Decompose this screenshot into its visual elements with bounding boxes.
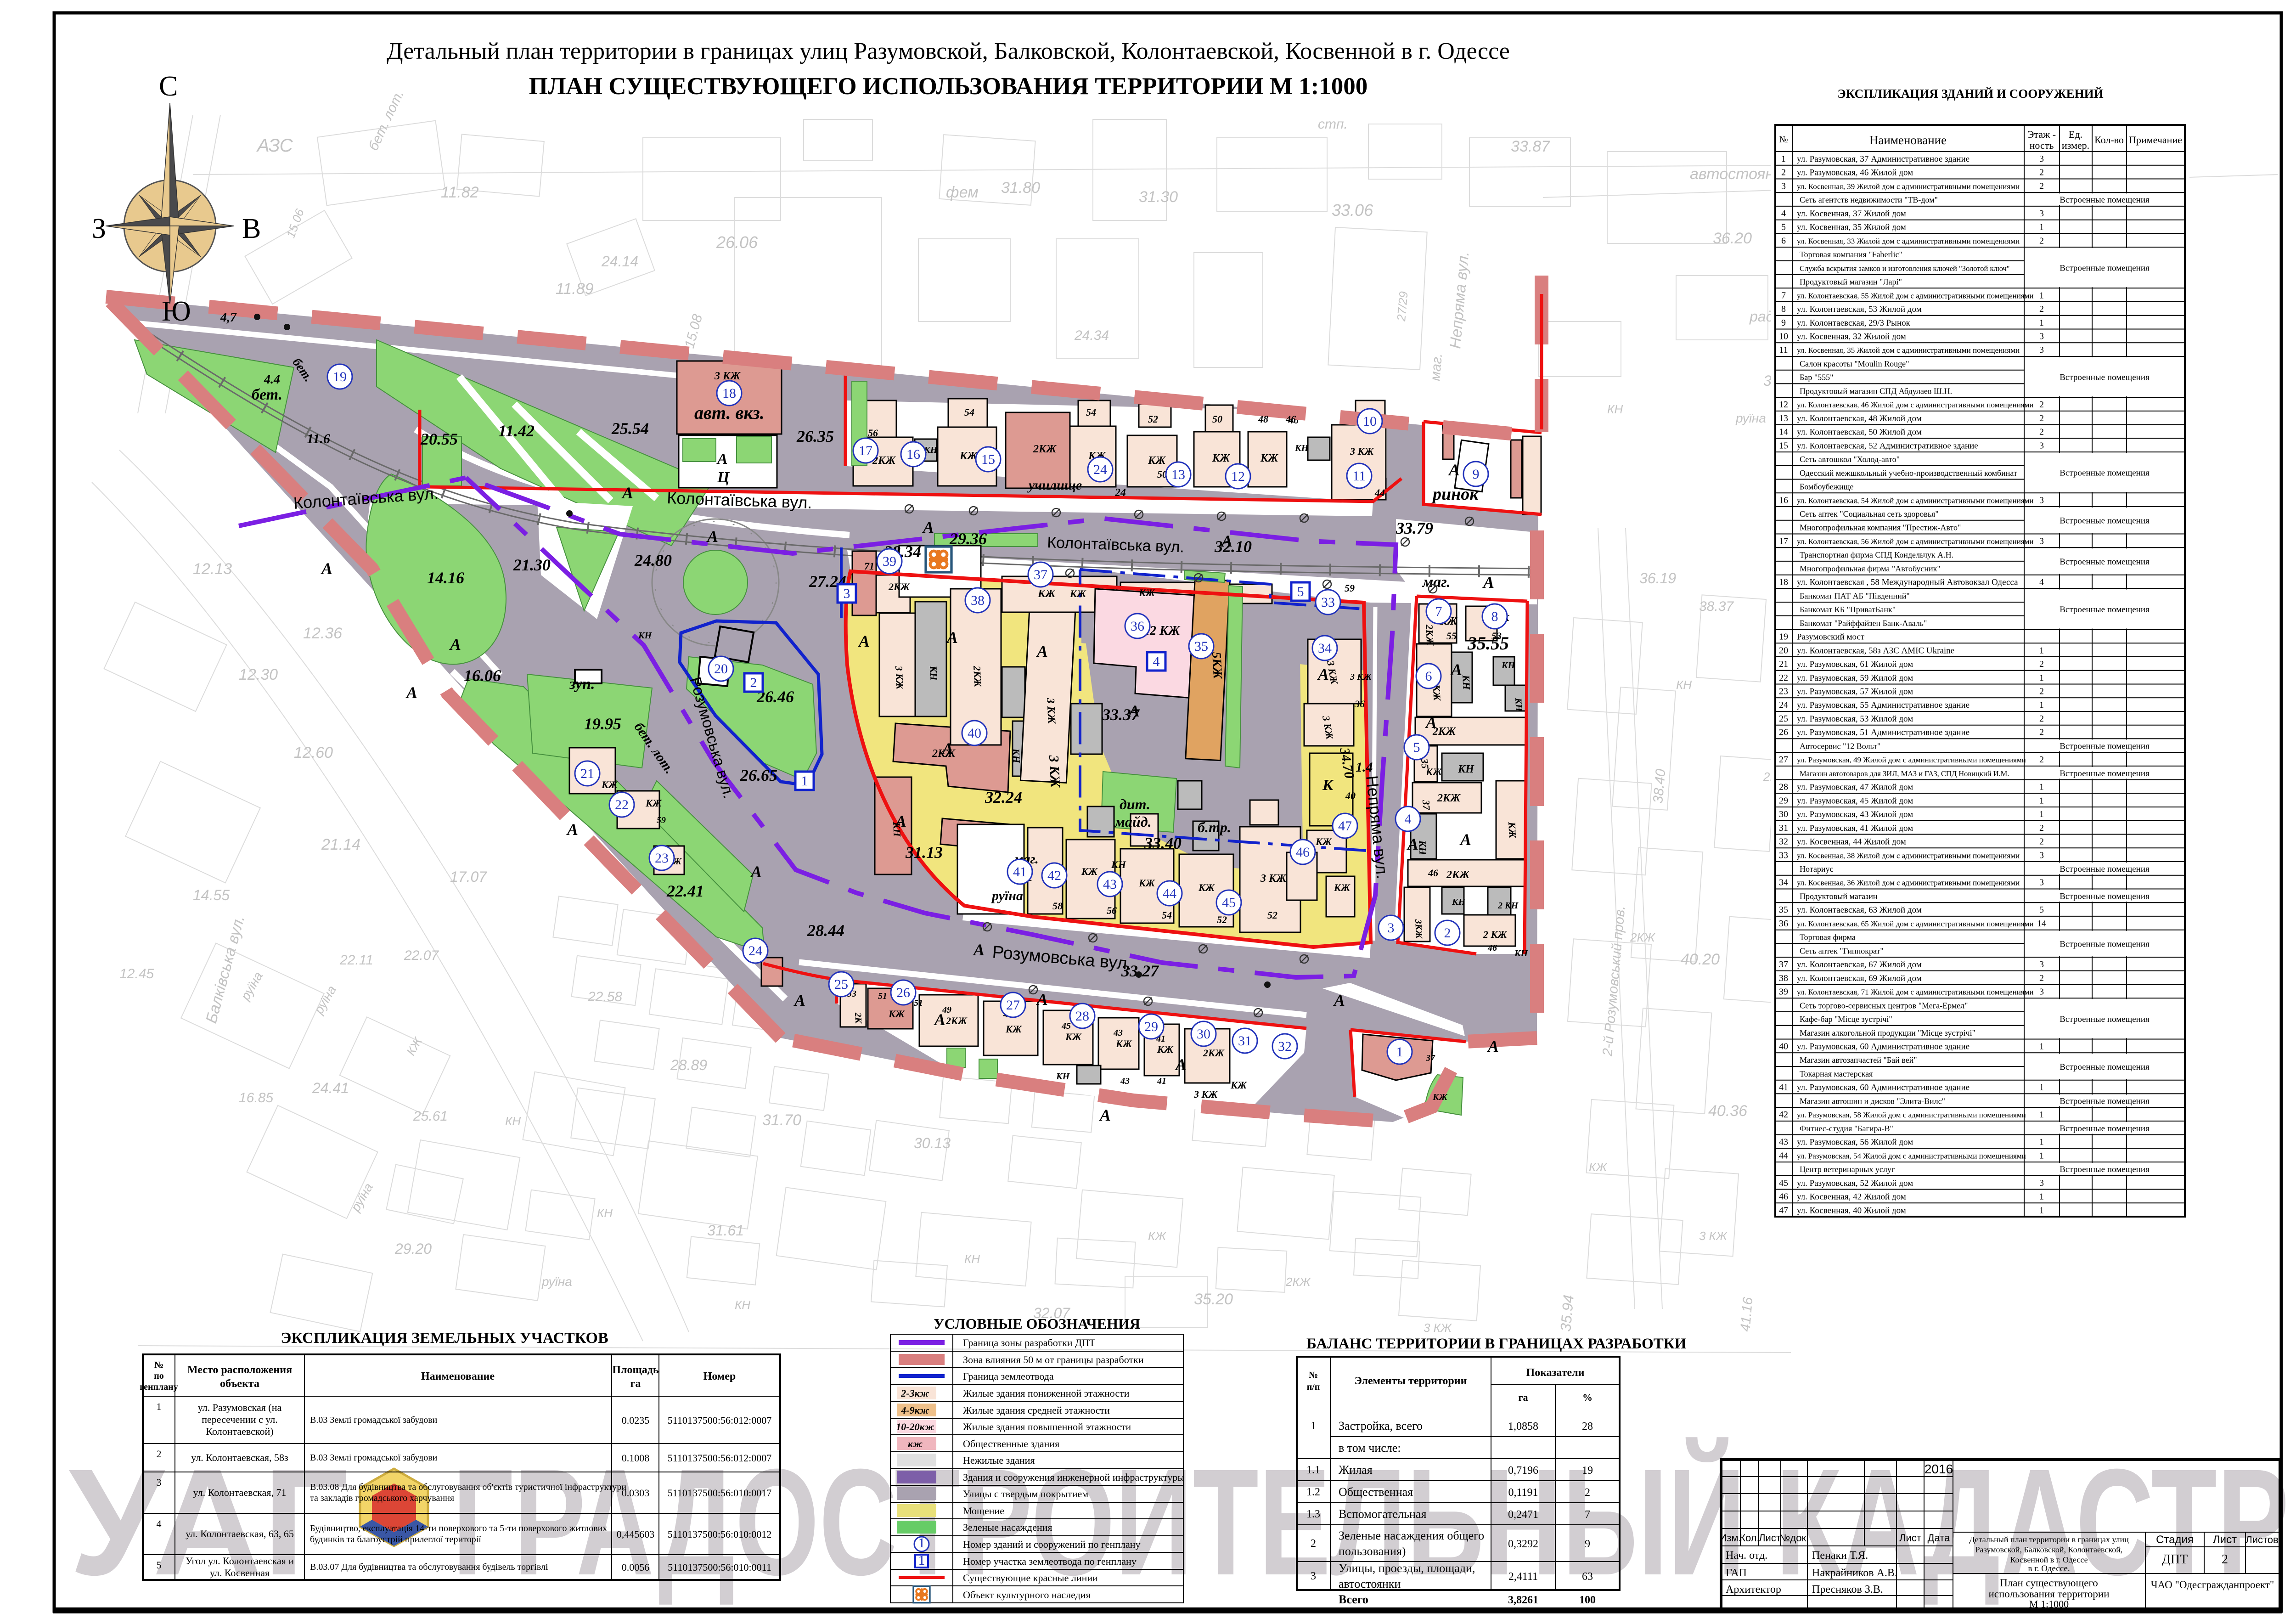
svg-text:1: 1 [2039,1150,2044,1161]
svg-text:0,2471: 0,2471 [1508,1509,1538,1521]
svg-text:Дата: Дата [1928,1532,1950,1544]
svg-text:Магазин автошин и дисков "Элит: Магазин автошин и дисков "Элита-Вилс" [1800,1096,1945,1105]
svg-text:14: 14 [2037,919,2046,929]
svg-text:План существующего: План существующего [2000,1577,2098,1589]
svg-text:3: 3 [2039,850,2044,860]
svg-text:Встроенные помещения: Встроенные помещения [2060,741,2150,751]
svg-text:19: 19 [1582,1465,1593,1477]
svg-text:ул. Разумовская, 37 Админист: ул. Разумовская, 37 Административное зда… [1797,154,1970,164]
svg-text:2: 2 [1781,168,1786,178]
svg-text:9: 9 [1781,318,1786,328]
svg-text:42: 42 [1047,868,1061,883]
svg-text:Сеть аптек "Гиппократ": Сеть аптек "Гиппократ" [1800,946,1884,955]
svg-text:та закладів громадського харчу: та закладів громадського харчування [310,1493,454,1503]
svg-text:майд.: майд. [1114,813,1152,830]
svg-text:44: 44 [1779,1150,1788,1161]
svg-text:38.40: 38.40 [1650,768,1668,804]
svg-text:ул. Косвенная, 33 Жилой дом с: ул. Косвенная, 33 Жилой дом с администра… [1797,237,2020,245]
svg-text:Накрайников А.В.: Накрайников А.В. [1812,1567,1897,1579]
svg-text:будинків та благоустрій прилег: будинків та благоустрій прилеглої терито… [310,1534,481,1545]
svg-text:2КЖ: 2КЖ [945,1015,968,1026]
svg-text:ул. Разумовская, 46 Жилой дом: ул. Разумовская, 46 Жилой дом [1797,168,1913,178]
svg-text:1: 1 [2039,1042,2044,1052]
svg-text:А: А [1487,1037,1499,1055]
svg-text:14: 14 [1779,427,1788,437]
svg-text:КН: КН [1294,443,1309,453]
svg-text:45: 45 [1779,1178,1788,1188]
svg-text:ГАП: ГАП [1726,1567,1747,1579]
svg-text:30: 30 [1779,809,1788,819]
svg-text:7: 7 [1435,604,1442,619]
svg-text:Токарная мастерская: Токарная мастерская [1800,1069,1873,1078]
svg-text:0.0235: 0.0235 [622,1415,650,1426]
svg-text:руїна: руїна [1735,411,1766,425]
svg-text:2: 2 [2039,714,2044,724]
svg-text:1: 1 [1396,1044,1403,1060]
svg-text:Встроенные помещения: Встроенные помещения [2060,891,2150,901]
svg-text:2-3кж: 2-3кж [900,1387,929,1399]
svg-text:б.тр.: б.тр. [1198,819,1231,835]
svg-text:2: 2 [2039,823,2044,833]
svg-text:29.20: 29.20 [394,1241,432,1257]
svg-text:40: 40 [1345,790,1356,801]
svg-text:3: 3 [157,1477,162,1488]
svg-text:в г. Одессе.: в г. Одессе. [2028,1564,2070,1573]
svg-text:Номер: Номер [703,1370,736,1382]
svg-text:Бар "555": Бар "555" [1800,373,1834,382]
svg-text:КЖ: КЖ [1198,882,1215,893]
svg-text:36: 36 [1131,619,1144,634]
svg-text:Встроенные помещения: Встроенные помещения [2060,373,2150,383]
svg-text:Банкомат "Райффайзен Банк-Авал: Банкомат "Райффайзен Банк-Аваль" [1800,619,1927,628]
svg-text:39: 39 [1779,987,1788,997]
svg-text:Мощение: Мощение [963,1505,1004,1517]
svg-text:1: 1 [2039,222,2044,232]
svg-text:Общественная: Общественная [1339,1485,1413,1499]
svg-text:0.1008: 0.1008 [622,1452,650,1464]
svg-text:Объект культурного наследия: Объект культурного наследия [963,1589,1091,1601]
svg-text:33: 33 [1321,595,1335,610]
svg-text:46: 46 [1779,1192,1788,1202]
svg-text:28: 28 [1075,1009,1089,1024]
svg-text:КЖ: КЖ [1157,1043,1174,1055]
svg-text:4: 4 [2039,577,2044,587]
svg-text:Существующие красные линии: Существующие красные линии [963,1572,1098,1584]
svg-text:Сеть торгово-сервисных центров: Сеть торгово-сервисных центров "Мега-Ерм… [1800,1001,1968,1010]
svg-text:КЖ: КЖ [1148,455,1166,467]
svg-text:Ед.: Ед. [2069,129,2082,140]
svg-text:Встроенные помещения: Встроенные помещения [2060,1124,2150,1133]
svg-text:38: 38 [971,593,985,608]
svg-text:25: 25 [1779,714,1788,724]
svg-text:2КЖ: 2КЖ [1203,1047,1225,1059]
svg-text:4: 4 [1153,654,1160,669]
svg-text:Будівництво, експлуатація 14-т: Будівництво, експлуатація 14-ти поверхов… [310,1523,607,1534]
svg-text:КЖ: КЖ [1432,1092,1448,1102]
svg-text:ул. Колонтаевская, 67 Жилой: ул. Колонтаевская, 67 Жилой дом [1797,960,1922,970]
svg-text:ул. Разумовская, 49 Жилой до: ул. Разумовская, 49 Жилой дом с админист… [1797,756,2026,764]
svg-text:35.20: 35.20 [1194,1291,1233,1308]
svg-text:16.06: 16.06 [464,666,501,685]
svg-text:2КЖ: 2КЖ [888,581,910,592]
svg-text:1: 1 [801,773,808,789]
svg-text:ул. Разумовская, 57 Жилой до: ул. Разумовская, 57 Жилой дом [1797,687,1913,697]
svg-text:стп.: стп. [1318,117,1348,132]
svg-text:ул. Разумовская, 53 Жилой до: ул. Разумовская, 53 Жилой дом [1797,714,1913,724]
svg-text:100: 100 [1579,1594,1596,1606]
svg-text:Граница зоны разработки ДПТ: Граница зоны разработки ДПТ [963,1337,1096,1348]
svg-text:А: А [922,518,934,536]
svg-text:6: 6 [1425,669,1432,684]
svg-text:1: 1 [2039,1083,2044,1093]
svg-text:8: 8 [1491,609,1498,624]
svg-text:1: 1 [918,1553,925,1568]
svg-text:КЖ: КЖ [1005,1023,1022,1035]
svg-text:ПЛАН СУЩЕСТВУЮЩЕГО ИСПОЛЬЗОВАН: ПЛАН СУЩЕСТВУЮЩЕГО ИСПОЛЬЗОВАНИЯ ТЕРРИТО… [529,73,1368,100]
svg-text:ул. Косвенная, 35 Жилой дом: ул. Косвенная, 35 Жилой дом с администра… [1797,346,2020,355]
svg-text:ул. Колонтаевская, 71: ул. Колонтаевская, 71 [193,1487,287,1498]
svg-text:2: 2 [2039,687,2044,697]
svg-text:11.89: 11.89 [556,280,594,298]
svg-text:10: 10 [1363,414,1377,429]
svg-text:ул. Разумовская, 59 Жилой до: ул. Разумовская, 59 Жилой дом [1797,673,1913,683]
svg-text:Магазин алкогольной продукции: Магазин алкогольной продукции "Місце зус… [1800,1028,1975,1038]
svg-text:3: 3 [2039,987,2044,997]
svg-text:3 КЖ: 3 КЖ [1044,697,1058,725]
svg-text:26.06: 26.06 [716,233,758,252]
svg-text:36: 36 [1779,919,1788,929]
svg-text:КЖ: КЖ [1138,877,1155,889]
svg-text:га: га [630,1378,641,1390]
svg-text:Встроенные помещения: Встроенные помещения [2060,195,2150,205]
svg-text:45: 45 [1061,1021,1071,1031]
svg-text:38.37: 38.37 [1699,599,1734,614]
svg-text:3: 3 [2039,878,2044,888]
svg-text:40.36: 40.36 [1708,1102,1747,1120]
svg-text:Граница землеотвода: Граница землеотвода [963,1370,1054,1382]
svg-text:руїна: руїна [541,1274,572,1289]
svg-text:Сеть автошкол "Холод-авто": Сеть автошкол "Холод-авто" [1800,455,1900,464]
svg-text:12.45: 12.45 [119,966,154,981]
svg-text:5110137500:56:010:0017: 5110137500:56:010:0017 [668,1487,772,1499]
svg-text:31: 31 [1238,1033,1252,1049]
svg-text:15: 15 [981,452,995,467]
svg-text:Улицы, проезды, площади,: Улицы, проезды, площади, [1339,1562,1475,1575]
svg-text:13: 13 [1779,413,1788,423]
svg-text:КЖ: КЖ [1425,766,1442,778]
svg-text:А: А [321,559,332,578]
svg-text:22.11: 22.11 [339,953,373,968]
svg-text:2КЖ: 2КЖ [1437,792,1461,804]
svg-text:15: 15 [1779,440,1788,451]
svg-text:ул. Колонтаевская, 53 Жилой до: ул. Колонтаевская, 53 Жилой дом [1797,304,1922,314]
svg-text:12: 12 [1231,469,1245,484]
svg-text:55: 55 [1446,630,1457,642]
svg-text:А: А [973,941,985,959]
svg-text:В.03.07 Для будівництва та обс: В.03.07 Для будівництва та обслуговуванн… [310,1562,548,1572]
svg-text:16: 16 [906,447,920,462]
svg-text:Застройка, всего: Застройка, всего [1339,1419,1423,1432]
svg-text:п/п: п/п [1307,1382,1320,1392]
svg-text:7: 7 [1585,1509,1590,1521]
svg-text:31.13: 31.13 [905,843,943,862]
svg-text:Наименование: Наименование [421,1370,495,1382]
svg-text:2: 2 [1311,1538,1316,1550]
svg-text:А: А [1175,1055,1187,1074]
svg-text:А: А [1448,461,1460,479]
svg-text:20: 20 [1779,645,1788,655]
svg-text:пересечении с ул.: пересечении с ул. [202,1414,278,1425]
svg-text:Многопрофильная компания "Прес: Многопрофильная компания "Престиж-Авто" [1800,523,1961,532]
svg-text:Зеленые насаждения: Зеленые насаждения [963,1522,1052,1533]
svg-text:ул. Разумовская, 56 Жилой дом: ул. Разумовская, 56 Жилой дом [1797,1138,1913,1147]
svg-text:ул. Разумовская, 45 Жилой до: ул. Разумовская, 45 Жилой дом [1797,796,1913,806]
svg-text:№: № [154,1360,163,1370]
svg-text:Вспомогательная: Вспомогательная [1339,1507,1426,1521]
svg-text:КН: КН [1460,674,1473,690]
svg-text:КН: КН [735,1298,750,1312]
svg-text:17.07: 17.07 [450,868,487,885]
svg-text:32: 32 [1779,837,1788,847]
svg-text:Служба вскрытия замков и изгот: Служба вскрытия замков и изготовления кл… [1800,264,2010,273]
svg-text:дит.: дит. [1120,796,1150,812]
svg-text:1.1: 1.1 [1306,1464,1320,1476]
svg-text:24.14: 24.14 [601,253,638,270]
svg-text:2: 2 [2039,973,2044,983]
svg-text:32: 32 [1278,1039,1292,1054]
svg-text:4.4: 4.4 [264,372,280,387]
svg-text:71: 71 [864,560,874,572]
svg-text:КЖ: КЖ [1148,1229,1167,1243]
svg-text:КН: КН [1056,1071,1070,1082]
svg-text:2КЖ: 2КЖ [1033,443,1057,455]
svg-text:24: 24 [1114,487,1126,499]
svg-text:КН: КН [1010,748,1023,764]
svg-text:Встроенные помещения: Встроенные помещения [2060,1096,2150,1106]
svg-text:11.42: 11.42 [498,422,535,440]
svg-text:ул. Колонтаевская, 55 Жилой до: ул. Колонтаевская, 55 Жилой дом с админи… [1797,291,2034,300]
svg-text:КЖ: КЖ [1315,836,1332,847]
svg-text:измер.: измер. [2062,140,2089,151]
svg-text:27: 27 [1779,755,1788,765]
svg-text:5110137500:56:010:0011: 5110137500:56:010:0011 [668,1562,771,1573]
svg-text:63: 63 [1582,1571,1593,1583]
svg-text:5110137500:56:012:0007: 5110137500:56:012:0007 [668,1452,772,1464]
svg-text:1: 1 [918,1535,925,1551]
svg-text:3: 3 [1781,181,1786,192]
svg-text:3: 3 [2039,440,2044,451]
svg-text:3 КЖ: 3 КЖ [893,665,906,690]
svg-text:АЗС: АЗС [256,135,293,156]
svg-text:40.20: 40.20 [1681,951,1720,968]
svg-text:31.80: 31.80 [1001,179,1040,197]
svg-text:Зона влияния 50 м от границы р: Зона влияния 50 м от границы разработки [963,1354,1144,1365]
svg-text:3 КЖ: 3 КЖ [1260,873,1287,885]
svg-text:Встроенные помещения: Встроенные помещения [2060,1165,2150,1174]
svg-text:КЖ: КЖ [1037,588,1056,600]
svg-text:46: 46 [1296,845,1310,860]
svg-text:А: А [405,683,417,702]
svg-text:Лист: Лист [1899,1532,1921,1544]
svg-text:Продуктовый магазин "Ларі": Продуктовый магазин "Ларі" [1800,277,1902,287]
svg-text:2: 2 [2039,400,2044,410]
svg-text:Косвенной в г. Одессе: Косвенной в г. Одессе [2010,1555,2088,1564]
svg-text:Элементы территории: Элементы территории [1355,1375,1467,1387]
svg-text:автостоянки: автостоянки [1339,1577,1401,1590]
svg-text:1: 1 [157,1401,162,1412]
svg-text:ул. Разумовская, 51 Админист: ул. Разумовская, 51 Административное зда… [1797,728,1970,738]
svg-text:К: К [1322,777,1334,794]
svg-text:54: 54 [964,406,974,418]
svg-text:12.60: 12.60 [294,744,333,761]
svg-text:2К: 2К [853,1012,863,1024]
svg-text:объекта: объекта [220,1378,259,1390]
svg-text:24: 24 [1779,700,1788,710]
svg-text:1: 1 [2039,1110,2044,1120]
svg-text:42: 42 [1779,1110,1788,1120]
svg-text:КН: КН [1513,697,1524,712]
svg-text:22.07: 22.07 [404,948,439,963]
svg-text:46: 46 [1428,867,1438,879]
svg-text:ЭКСПЛИКАЦИЯ ЗДАНИЙ И СООРУЖЕНИ: ЭКСПЛИКАЦИЯ ЗДАНИЙ И СООРУЖЕНИЙ [1837,87,2103,101]
svg-text:4: 4 [1781,209,1786,219]
svg-text:Сеть аптек "Социальная сеть зд: Сеть аптек "Социальная сеть здоровья" [1800,509,1939,519]
svg-text:А: А [716,451,728,468]
svg-text:37: 37 [1779,959,1788,970]
svg-text:3: 3 [1311,1570,1316,1582]
svg-text:ул. Косвенная, 44 Жилой дом: ул. Косвенная, 44 Жилой дом [1797,837,1906,847]
svg-text:1: 1 [2039,1205,2044,1215]
svg-text:46: 46 [1487,943,1497,953]
svg-text:44: 44 [1163,886,1176,901]
svg-text:А: А [621,484,633,502]
svg-text:ул. Разумовская, 54 Жилой дом: ул. Разумовская, 54 Жилой дом с админист… [1797,1151,2026,1160]
svg-text:24.41: 24.41 [312,1080,349,1096]
svg-text:52: 52 [1267,909,1277,921]
svg-text:Продуктовый магазин: Продуктовый магазин [1800,892,1878,901]
svg-text:КН: КН [1417,840,1429,856]
svg-text:В.03.08 Для будівництва та обс: В.03.08 Для будівництва та обслуговуванн… [310,1482,626,1492]
svg-text:28: 28 [1582,1421,1593,1432]
svg-text:19: 19 [1779,632,1788,642]
svg-text:11.82: 11.82 [441,184,479,201]
svg-text:3: 3 [2039,1178,2044,1188]
svg-text:ул. Колонтаевская, 54 Жилой до: ул. Колонтаевская, 54 Жилой дом с админи… [1797,496,2034,505]
svg-text:училище: училище [1027,478,1082,493]
svg-text:ул. Разумовская, 41 Жилой до: ул. Разумовская, 41 Жилой дом [1797,823,1913,833]
svg-text:12.13: 12.13 [193,560,232,578]
svg-text:Встроенные помещения: Встроенные помещения [2060,557,2150,567]
svg-text:Нежилые здания: Нежилые здания [963,1455,1035,1466]
svg-text:12.30: 12.30 [239,666,278,683]
svg-text:22: 22 [1779,673,1788,683]
svg-text:Нотариус: Нотариус [1800,864,1833,874]
svg-text:ул. Разумовская, 55 Админист: ул. Разумовская, 55 Административное зда… [1797,700,1970,710]
svg-text:48: 48 [1258,413,1268,425]
svg-text:2КЖ: 2КЖ [1432,726,1456,738]
svg-text:19.95: 19.95 [584,715,621,733]
svg-text:2: 2 [2039,168,2044,178]
svg-text:А: А [1407,835,1418,853]
svg-text:3: 3 [2039,495,2044,505]
svg-text:А: А [1036,642,1048,660]
svg-text:УСЛОВНЫЕ ОБОЗНАЧЕНИЯ: УСЛОВНЫЕ ОБОЗНАЧЕНИЯ [934,1315,1140,1332]
svg-text:1: 1 [2039,645,2044,655]
svg-text:Встроенные помещения: Встроенные помещения [2060,939,2150,949]
svg-text:КН: КН [1458,763,1474,775]
svg-text:13: 13 [1171,467,1185,482]
svg-text:Сеть агентств недвижимости "ТВ: Сеть агентств недвижимости "ТВ-дом" [1800,195,1938,204]
svg-text:№: № [1779,135,1788,145]
svg-text:А: А [566,820,578,839]
svg-text:31: 31 [1779,823,1788,833]
svg-text:33.40: 33.40 [1144,834,1182,852]
svg-text:%: % [1582,1392,1593,1403]
svg-text:Кол-во: Кол-во [2094,134,2124,146]
svg-text:25.54: 25.54 [611,419,649,438]
svg-text:32.10: 32.10 [1214,537,1252,556]
svg-text:генплану: генплану [140,1382,178,1392]
svg-text:36.20: 36.20 [1713,230,1752,247]
svg-text:Торговая компания "Faberlic": Торговая компания "Faberlic" [1800,250,1902,259]
svg-text:ринок: ринок [1431,485,1479,504]
svg-text:7: 7 [1781,290,1786,300]
svg-text:КЖ: КЖ [1138,587,1155,598]
svg-text:17: 17 [859,443,872,458]
svg-text:24: 24 [1093,462,1107,477]
svg-text:45: 45 [1222,895,1236,910]
svg-text:Продуктовый магазин СПД Абдула: Продуктовый магазин СПД Абдулаев Ш.Н. [1800,386,1952,395]
svg-text:Многопрофильная фирма "Автобус: Многопрофильная фирма "Автобусник" [1800,564,1941,573]
svg-text:2016: 2016 [1925,1462,1953,1476]
svg-text:А: А [1333,991,1345,1009]
svg-text:1: 1 [2039,700,2044,710]
svg-text:3 КЖ: 3 КЖ [1193,1088,1218,1100]
svg-text:Жилая: Жилая [1339,1463,1373,1477]
svg-text:КЖ: КЖ [1212,452,1230,464]
svg-text:1: 1 [2039,318,2044,328]
svg-text:КЖ: КЖ [645,797,662,809]
svg-text:ЧАО "Одесгражданпроект": ЧАО "Одесгражданпроект" [2151,1579,2274,1590]
svg-text:Центр ветеринарных услуг: Центр ветеринарных услуг [1800,1165,1895,1174]
svg-text:14.55: 14.55 [193,887,230,903]
svg-text:Стадия: Стадия [2156,1534,2194,1546]
svg-text:29: 29 [1144,1019,1158,1034]
svg-text:52: 52 [1148,413,1158,425]
svg-text:24: 24 [748,943,762,959]
svg-text:2КЖ: 2КЖ [1285,1275,1311,1289]
svg-text:41: 41 [1157,1076,1166,1086]
svg-text:4-9кж: 4-9кж [900,1404,929,1416]
svg-text:34: 34 [1318,641,1332,656]
svg-text:А: А [858,632,870,650]
svg-text:А: А [1482,573,1494,592]
svg-text:36: 36 [1354,698,1365,710]
svg-text:32.24: 32.24 [985,788,1022,806]
svg-text:КН: КН [638,631,653,641]
svg-text:А: А [1099,1106,1111,1124]
svg-text:9: 9 [1585,1538,1590,1550]
svg-text:26: 26 [896,985,910,1000]
svg-text:3: 3 [2039,154,2044,164]
svg-text:ДПТ: ДПТ [2162,1552,2188,1567]
svg-text:Транспортная фирма СПД Кондель: Транспортная фирма СПД Кондельчук А.Н. [1800,550,1953,559]
svg-text:1.3: 1.3 [1306,1508,1320,1520]
svg-text:Одесский межшкольный учебно-пр: Одесский межшкольный учебно-производстве… [1800,468,2017,478]
svg-text:Лист: Лист [1759,1532,1781,1544]
svg-text:Листов: Листов [2245,1534,2278,1545]
svg-text:12: 12 [1779,400,1788,410]
